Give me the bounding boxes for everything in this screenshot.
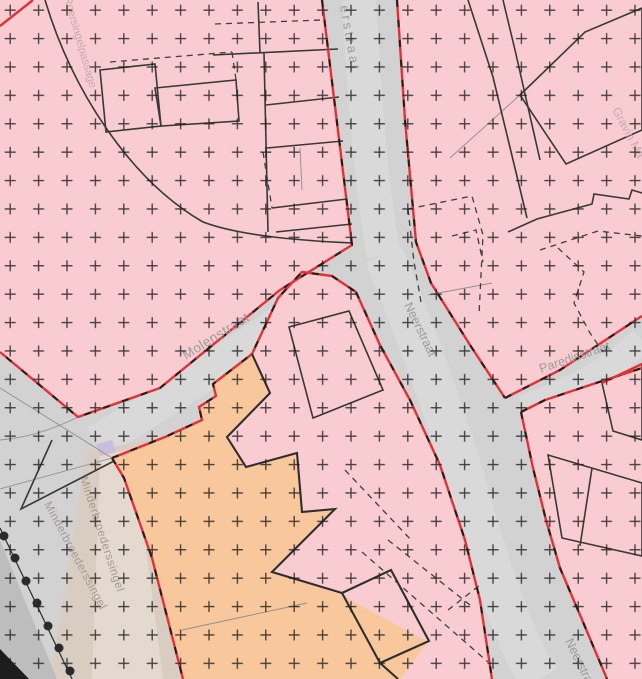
cross-hatch-overlay <box>0 0 642 679</box>
map-viewport[interactable]: Roersingelpassage erstraat Molenstraat N… <box>0 0 642 679</box>
map-canvas[interactable]: Roersingelpassage erstraat Molenstraat N… <box>0 0 642 679</box>
